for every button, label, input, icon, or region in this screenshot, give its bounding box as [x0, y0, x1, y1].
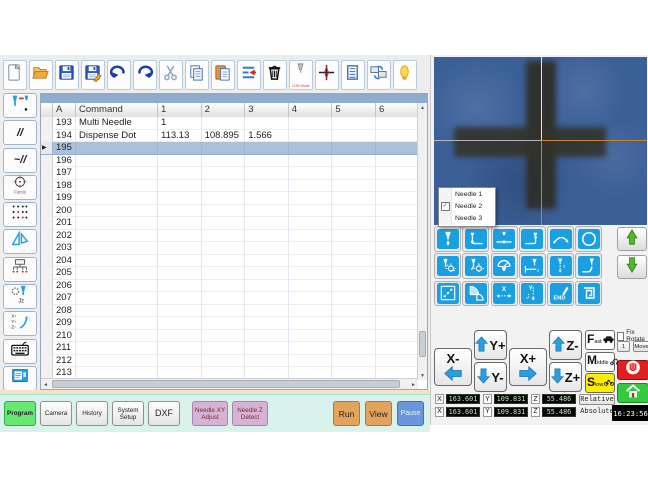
command-cell[interactable]	[76, 217, 158, 230]
param-cell[interactable]	[289, 192, 333, 205]
param-cell[interactable]	[245, 167, 289, 180]
row-marker	[41, 242, 53, 255]
command-cell[interactable]	[76, 167, 158, 180]
command-cell[interactable]	[76, 267, 158, 280]
line-start-button[interactable]	[462, 226, 489, 252]
param-cell[interactable]	[376, 230, 418, 243]
dispense-dot-button[interactable]	[434, 226, 461, 252]
param-cell[interactable]	[332, 130, 376, 143]
line-passing-icon	[493, 229, 515, 250]
param-cell[interactable]	[202, 242, 246, 255]
dot-setup-button[interactable]	[434, 253, 461, 279]
tab-history[interactable]: History	[76, 401, 108, 426]
needle-z-path-button[interactable]: z	[547, 253, 574, 279]
needle-menu-item[interactable]: Needle 3	[439, 213, 495, 225]
param-cell[interactable]	[332, 230, 376, 243]
tab-system-setup[interactable]: System Setup	[112, 401, 144, 426]
param-cell[interactable]	[202, 117, 246, 130]
crosshair-button[interactable]	[315, 60, 339, 90]
param-cell[interactable]	[158, 355, 202, 368]
sidebar-needle-gear-jz-button[interactable]: Jz	[3, 284, 37, 309]
crosshair-line	[541, 140, 647, 141]
command-cell[interactable]	[76, 205, 158, 218]
command-cell[interactable]	[76, 230, 158, 243]
log-button[interactable]	[341, 60, 365, 90]
tab-dxf[interactable]: DXF	[148, 401, 180, 426]
x-offset-button[interactable]: X	[491, 281, 518, 307]
jog-x-minus-button[interactable]: X-	[434, 348, 472, 386]
row-number-cell[interactable]: 200	[53, 205, 76, 218]
param-cell[interactable]	[289, 342, 333, 355]
param-cell[interactable]	[289, 230, 333, 243]
needle-curve-icon	[578, 256, 600, 277]
column-header	[41, 103, 53, 117]
x-coordinate-value: 163.601	[446, 407, 480, 417]
command-cell[interactable]	[76, 255, 158, 268]
needle-gear-jz-icon: Jz	[9, 283, 31, 310]
table-row[interactable]: 203	[41, 242, 418, 255]
jog-label: Z-	[566, 338, 578, 353]
param-cell[interactable]	[202, 317, 246, 330]
param-cell[interactable]	[376, 317, 418, 330]
tab-needle-z-detect[interactable]: Needle Z Detect	[232, 401, 268, 426]
param-cell[interactable]	[158, 317, 202, 330]
param-cell[interactable]	[332, 205, 376, 218]
work-lamp-button[interactable]	[393, 60, 417, 90]
param-cell[interactable]	[158, 255, 202, 268]
param-cell[interactable]	[289, 305, 333, 318]
sidebar-parallel-line-button[interactable]: //	[3, 120, 37, 145]
param-cell[interactable]	[245, 292, 289, 305]
param-cell[interactable]	[376, 280, 418, 293]
param-cell[interactable]	[332, 142, 376, 155]
param-cell[interactable]	[245, 230, 289, 243]
jog-y-plus-button[interactable]: Y+	[474, 330, 507, 360]
home-icon	[624, 383, 642, 404]
row-marker	[41, 167, 53, 180]
param-cell[interactable]	[332, 217, 376, 230]
column-header: 6	[376, 103, 420, 117]
row-number-cell[interactable]: 205	[53, 267, 76, 280]
dot-matrix-icon	[9, 201, 31, 228]
row-number-cell[interactable]: 193	[53, 117, 76, 130]
row-marker	[41, 342, 53, 355]
scroll-right-icon[interactable]: ►	[409, 380, 418, 389]
param-cell[interactable]	[289, 242, 333, 255]
param-cell[interactable]	[245, 355, 289, 368]
z-clearance-button[interactable]: z	[519, 253, 546, 279]
svg-text:Y›: Y›	[11, 319, 16, 325]
param-cell[interactable]	[332, 267, 376, 280]
new-button[interactable]	[3, 60, 27, 90]
param-cell[interactable]	[202, 217, 246, 230]
row-marker	[41, 192, 53, 205]
table-row[interactable]: 210	[41, 330, 418, 343]
param-cell[interactable]	[332, 242, 376, 255]
param-cell[interactable]	[289, 155, 333, 168]
needle-menu-item[interactable]: Needle 1	[439, 188, 495, 200]
sidebar-array-tree-button[interactable]	[3, 257, 37, 282]
jog-y-minus-button[interactable]: Y-	[474, 362, 507, 392]
param-cell[interactable]	[202, 192, 246, 205]
param-cell[interactable]	[245, 205, 289, 218]
command-cell[interactable]	[76, 355, 158, 368]
table-row[interactable]: 194Dispense Dot113.13108.8951.566	[41, 130, 418, 143]
row-number-cell[interactable]: 197	[53, 167, 76, 180]
arc-button[interactable]	[547, 226, 574, 252]
command-cell[interactable]	[76, 242, 158, 255]
relative-mode-toggle[interactable]: Relative	[579, 394, 615, 405]
param-cell[interactable]	[376, 267, 418, 280]
horizontal-scroll-thumb[interactable]	[52, 380, 400, 388]
run-button[interactable]: Run	[333, 401, 360, 426]
row-number-cell[interactable]: 199	[53, 192, 76, 205]
command-cell[interactable]: Multi Needle	[76, 117, 158, 130]
param-cell[interactable]	[289, 355, 333, 368]
absolute-mode-toggle[interactable]: Absolute	[579, 407, 615, 418]
row-number-cell[interactable]: 208	[53, 305, 76, 318]
param-cell[interactable]	[158, 280, 202, 293]
param-cell[interactable]	[158, 142, 202, 155]
param-cell[interactable]	[245, 217, 289, 230]
param-cell[interactable]	[289, 255, 333, 268]
fix-rotate-checkbox[interactable]	[617, 332, 624, 341]
cut-icon	[161, 63, 180, 87]
table-row[interactable]: 207	[41, 292, 418, 305]
row-number-cell[interactable]: 196	[53, 155, 76, 168]
table-row[interactable]: ▶195	[41, 142, 418, 155]
focus-icon: Focus	[9, 174, 31, 201]
row-number-cell[interactable]: 194	[53, 130, 76, 143]
needle-menu-label: Needle 2	[452, 203, 482, 210]
paste-button[interactable]	[211, 60, 235, 90]
param-cell[interactable]	[158, 242, 202, 255]
open-button[interactable]	[29, 60, 53, 90]
param-cell[interactable]	[289, 330, 333, 343]
command-cell[interactable]: Dispense Dot	[76, 130, 158, 143]
param-cell[interactable]	[332, 355, 376, 368]
tab-needle-xy-adjust[interactable]: Needle XY Adjust	[192, 401, 228, 426]
table-row[interactable]: 202	[41, 230, 418, 243]
jog-z-plus-button[interactable]: Z+	[549, 362, 582, 392]
row-number-cell[interactable]: 212	[53, 355, 76, 368]
param-cell[interactable]	[332, 155, 376, 168]
move-button[interactable]: Move	[633, 341, 648, 352]
param-cell[interactable]	[245, 330, 289, 343]
param-cell[interactable]	[332, 305, 376, 318]
row-number-cell[interactable]: 202	[53, 230, 76, 243]
delete-button[interactable]	[263, 60, 287, 90]
param-cell[interactable]	[289, 142, 333, 155]
table-row[interactable]: 196	[41, 155, 418, 168]
arrow-down-icon	[551, 365, 564, 390]
view-button[interactable]: View	[365, 401, 392, 426]
param-cell[interactable]	[376, 342, 418, 355]
param-cell[interactable]	[158, 230, 202, 243]
scroll-up-icon[interactable]: ▲	[418, 103, 427, 112]
param-cell[interactable]	[245, 342, 289, 355]
table-row[interactable]: 193Multi Needle1	[41, 117, 418, 130]
fan-area-button[interactable]	[462, 281, 489, 307]
param-cell[interactable]	[376, 292, 418, 305]
undo-button[interactable]	[107, 60, 131, 90]
param-cell[interactable]	[202, 330, 246, 343]
param-cell[interactable]	[202, 267, 246, 280]
param-cell[interactable]	[376, 242, 418, 255]
row-number-cell[interactable]: 209	[53, 317, 76, 330]
command-cell[interactable]	[76, 192, 158, 205]
vertical-scroll-thumb[interactable]	[419, 331, 426, 357]
param-cell[interactable]	[245, 317, 289, 330]
command-cell[interactable]	[76, 292, 158, 305]
param-cell[interactable]	[376, 180, 418, 193]
param-cell[interactable]	[332, 192, 376, 205]
param-cell[interactable]	[332, 167, 376, 180]
list-up-button[interactable]	[617, 227, 647, 251]
x-axis-label: X	[435, 407, 444, 417]
param-cell[interactable]	[289, 130, 333, 143]
tab-camera[interactable]: Camera	[40, 401, 72, 426]
sidebar-xyz-adjust-button[interactable]: X›Y›Z›	[3, 311, 37, 336]
row-number-cell[interactable]: 206	[53, 280, 76, 293]
param-cell[interactable]	[245, 155, 289, 168]
scroll-down-icon[interactable]: ▼	[418, 371, 427, 380]
tab-program[interactable]: Program	[4, 401, 36, 426]
emergency-stop-button[interactable]	[617, 360, 648, 380]
sidebar-focus-button[interactable]: Focus	[3, 175, 37, 200]
speed-fast-button[interactable]: Fast	[585, 330, 615, 350]
param-cell[interactable]	[289, 317, 333, 330]
param-cell[interactable]	[245, 255, 289, 268]
row-marker	[41, 180, 53, 193]
crosshair-icon	[317, 63, 336, 87]
main-toolbar: COB Mode	[3, 58, 429, 91]
step-value-button[interactable]: 1	[617, 341, 630, 352]
table-row[interactable]: 205	[41, 267, 418, 280]
insert-delete-line-icon	[239, 63, 258, 87]
command-cell[interactable]	[76, 155, 158, 168]
list-down-button[interactable]	[617, 255, 647, 279]
param-cell[interactable]	[245, 267, 289, 280]
table-row[interactable]: 209	[41, 317, 418, 330]
speed-slow-button[interactable]: Slow	[585, 373, 615, 393]
param-cell[interactable]	[245, 192, 289, 205]
home-button[interactable]	[617, 383, 648, 403]
scroll-left-icon[interactable]: ◄	[41, 380, 50, 389]
redo-icon	[135, 63, 154, 87]
param-cell[interactable]	[202, 142, 246, 155]
row-number-cell[interactable]: 203	[53, 242, 76, 255]
param-cell[interactable]	[376, 255, 418, 268]
param-cell[interactable]	[376, 130, 418, 143]
param-cell[interactable]	[245, 305, 289, 318]
sidebar-wave-line-button[interactable]: ~//	[3, 148, 37, 173]
param-cell[interactable]	[376, 192, 418, 205]
param-cell[interactable]	[202, 342, 246, 355]
green-up-arrow-icon	[624, 228, 640, 251]
screen-sync-button[interactable]	[367, 60, 391, 90]
save-button[interactable]	[55, 60, 79, 90]
spiral-button[interactable]	[575, 281, 602, 307]
row-number-cell[interactable]: 211	[53, 342, 76, 355]
param-cell[interactable]	[376, 305, 418, 318]
param-cell[interactable]	[289, 180, 333, 193]
table-row[interactable]: 198	[41, 180, 418, 193]
sidebar-screen-view-button[interactable]	[3, 366, 37, 391]
param-cell[interactable]	[245, 280, 289, 293]
param-cell[interactable]	[289, 267, 333, 280]
needle-tool-icon	[9, 92, 31, 119]
param-cell[interactable]	[202, 180, 246, 193]
save-icon	[57, 63, 76, 87]
needle-menu-item[interactable]: ✓Needle 2	[439, 200, 495, 212]
table-row[interactable]: 200	[41, 205, 418, 218]
needle-curve-button[interactable]	[575, 253, 602, 279]
screen-sync-icon	[369, 63, 388, 87]
param-cell[interactable]	[332, 342, 376, 355]
jog-x-plus-button[interactable]: X+	[509, 348, 547, 386]
row-number-cell[interactable]: 198	[53, 180, 76, 193]
command-cell[interactable]	[76, 180, 158, 193]
svg-text:Jz: Jz	[18, 298, 24, 304]
param-cell[interactable]	[332, 317, 376, 330]
line-setup-button[interactable]	[462, 253, 489, 279]
redo-button[interactable]	[133, 60, 157, 90]
param-cell[interactable]	[202, 230, 246, 243]
param-cell[interactable]	[376, 217, 418, 230]
end-command-button[interactable]: END	[547, 281, 574, 307]
cut-button[interactable]	[159, 60, 183, 90]
command-cell[interactable]	[76, 142, 158, 155]
param-cell[interactable]	[158, 292, 202, 305]
table-row[interactable]: 197	[41, 167, 418, 180]
param-cell[interactable]	[202, 355, 246, 368]
spiral-icon	[578, 283, 600, 304]
row-number-cell[interactable]: 207	[53, 292, 76, 305]
param-cell[interactable]	[376, 205, 418, 218]
param-cell[interactable]	[245, 180, 289, 193]
param-cell[interactable]	[202, 167, 246, 180]
sidebar-set-square-button[interactable]	[3, 229, 37, 254]
table-row[interactable]: 206	[41, 280, 418, 293]
param-cell[interactable]	[202, 255, 246, 268]
param-cell[interactable]: 113.13	[158, 130, 202, 143]
table-row[interactable]: 199	[41, 192, 418, 205]
param-cell[interactable]	[289, 280, 333, 293]
svg-text:z: z	[537, 268, 540, 273]
save-as-button[interactable]	[81, 60, 105, 90]
param-cell[interactable]	[376, 355, 418, 368]
dot-array-button[interactable]	[434, 281, 461, 307]
param-cell[interactable]	[332, 280, 376, 293]
svg-text:z: z	[563, 264, 566, 269]
speed-middle-button[interactable]: Middle	[585, 352, 615, 372]
param-cell[interactable]	[332, 292, 376, 305]
command-cell[interactable]	[76, 280, 158, 293]
param-cell[interactable]	[376, 117, 418, 130]
param-cell[interactable]	[158, 342, 202, 355]
param-cell[interactable]	[332, 255, 376, 268]
pause-button[interactable]: Pause	[397, 401, 424, 426]
param-cell[interactable]	[158, 155, 202, 168]
param-cell[interactable]	[202, 292, 246, 305]
param-cell[interactable]	[158, 305, 202, 318]
param-cell[interactable]	[158, 180, 202, 193]
param-cell[interactable]	[289, 117, 333, 130]
insert-delete-line-button[interactable]	[237, 60, 261, 90]
dispense-gauge-button[interactable]	[491, 253, 518, 279]
param-cell[interactable]	[289, 167, 333, 180]
command-cell[interactable]	[76, 305, 158, 318]
dot-setup-icon	[437, 256, 459, 277]
sidebar-dot-matrix-button[interactable]	[3, 202, 37, 227]
vertical-scrollbar[interactable]: ▲ ▼	[417, 103, 427, 380]
table-row[interactable]: 208	[41, 305, 418, 318]
param-cell[interactable]	[158, 330, 202, 343]
line-passing-button[interactable]	[491, 226, 518, 252]
param-cell[interactable]	[376, 167, 418, 180]
jog-z-minus-button[interactable]: Z-	[549, 330, 582, 360]
param-cell[interactable]	[332, 180, 376, 193]
row-number-cell[interactable]: 201	[53, 217, 76, 230]
param-cell[interactable]: 1	[158, 117, 202, 130]
horizontal-scrollbar[interactable]: ◄ ►	[41, 378, 418, 389]
param-cell[interactable]	[158, 267, 202, 280]
y-offset-button[interactable]: Y	[519, 281, 546, 307]
svg-text:END: END	[553, 296, 565, 302]
param-cell[interactable]	[202, 205, 246, 218]
param-cell[interactable]	[289, 217, 333, 230]
param-cell[interactable]	[245, 142, 289, 155]
param-cell[interactable]	[376, 330, 418, 343]
param-cell[interactable]: 108.895	[202, 130, 246, 143]
param-cell[interactable]	[202, 155, 246, 168]
circle-button[interactable]	[575, 226, 602, 252]
param-cell[interactable]	[158, 205, 202, 218]
command-cell[interactable]	[76, 342, 158, 355]
param-cell[interactable]	[202, 280, 246, 293]
param-cell[interactable]	[376, 142, 418, 155]
line-end-button[interactable]	[519, 226, 546, 252]
sidebar-keyboard-button[interactable]	[3, 339, 37, 364]
cob-mode-button[interactable]: COB Mode	[289, 60, 313, 90]
param-cell[interactable]	[202, 305, 246, 318]
arrow-left-icon	[441, 366, 465, 384]
row-number-cell[interactable]: 195	[53, 142, 76, 155]
table-row[interactable]: 211	[41, 342, 418, 355]
param-cell[interactable]	[376, 155, 418, 168]
row-number-cell[interactable]: 204	[53, 255, 76, 268]
table-row[interactable]: 204	[41, 255, 418, 268]
param-cell[interactable]	[245, 242, 289, 255]
param-cell[interactable]	[289, 292, 333, 305]
copy-button[interactable]	[185, 60, 209, 90]
param-cell[interactable]: 1.566	[245, 130, 289, 143]
param-cell[interactable]	[158, 167, 202, 180]
command-cell[interactable]	[76, 317, 158, 330]
param-cell[interactable]	[332, 117, 376, 130]
param-cell[interactable]	[245, 117, 289, 130]
row-number-cell[interactable]: 210	[53, 330, 76, 343]
table-row[interactable]: 212	[41, 355, 418, 368]
sidebar-needle-tool-button[interactable]	[3, 93, 37, 118]
table-row[interactable]: 201	[41, 217, 418, 230]
command-cell[interactable]	[76, 330, 158, 343]
param-cell[interactable]	[332, 330, 376, 343]
param-cell[interactable]	[289, 205, 333, 218]
param-cell[interactable]	[158, 192, 202, 205]
param-cell[interactable]	[158, 217, 202, 230]
